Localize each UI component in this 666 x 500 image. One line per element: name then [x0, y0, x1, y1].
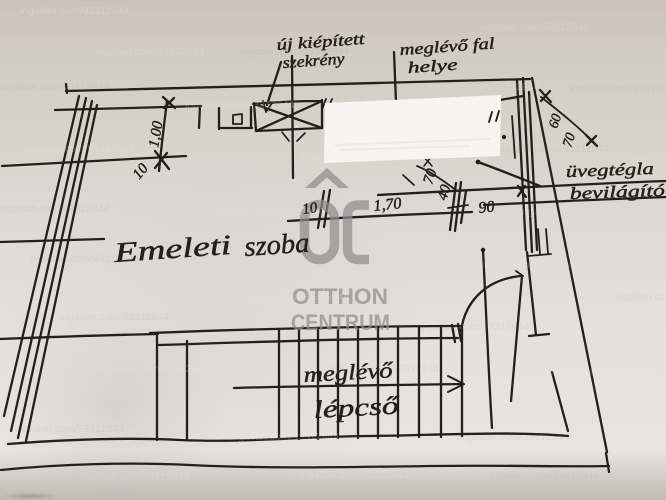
svg-text:40: 40: [435, 183, 455, 203]
svg-text:ingatlan.com/93312944: ingatlan.com/93312944: [480, 21, 589, 33]
svg-text:ingatlan.com/93312944: ingatlan.com/93312944: [240, 46, 349, 58]
svg-text:70: 70: [421, 167, 441, 187]
svg-text:helye: helye: [407, 57, 458, 77]
svg-text:ingatlan.com/93312944: ingatlan.com/93312944: [625, 151, 666, 163]
svg-text:ingatlan.com/93312944: ingatlan.com/93312944: [0, 203, 109, 215]
svg-text:ingatlan.com/93312944: ingatlan.com/93312944: [545, 366, 654, 378]
svg-text:90: 90: [478, 198, 496, 217]
svg-text:bevilágító: bevilágító: [569, 181, 665, 203]
svg-text:CENTRUM: CENTRUM: [291, 310, 390, 335]
svg-text:ingatlan.com/93312944: ingatlan.com/93312944: [300, 151, 409, 163]
svg-text:ingatlan.com/93312944: ingatlan.com/93312944: [520, 206, 629, 218]
svg-text:ingatlan.com/93312944: ingatlan.com/93312944: [470, 259, 579, 271]
svg-text:ingatlan.com/93312944: ingatlan.com/93312944: [100, 363, 209, 375]
svg-text:meglévő fal: meglévő fal: [399, 35, 496, 59]
svg-text:ingatlan.com/93312944: ingatlan.com/93312944: [570, 83, 666, 95]
svg-text:ingatlan.com/93312944: ingatlan.com/93312944: [60, 311, 169, 323]
svg-text:lépcső: lépcső: [313, 392, 401, 424]
svg-text:10: 10: [130, 160, 152, 182]
svg-text:ingatlan.com/93312944: ingatlan.com/93312944: [460, 431, 569, 443]
svg-text:ingatlan.com/93312944: ingatlan.com/93312944: [20, 5, 129, 17]
svg-text:ingatlan.com/93312944: ingatlan.com/93312944: [330, 363, 439, 375]
svg-text:ingatlan.com/93312944: ingatlan.com/93312944: [25, 143, 134, 155]
svg-text:ingatlan.com/93312944: ingatlan.com/93312944: [500, 143, 609, 155]
svg-text:ingatlan.com/93312944: ingatlan.com/93312944: [615, 291, 666, 303]
svg-text:ingatlan.com/93312944: ingatlan.com/93312944: [230, 431, 339, 443]
svg-text:ingatlan.com/93312944: ingatlan.com/93312944: [15, 423, 124, 435]
svg-text:ingatlan.com/93312944: ingatlan.com/93312944: [420, 321, 529, 333]
svg-text:ingatlan.com/93312944: ingatlan.com/93312944: [185, 99, 294, 111]
svg-text:1,70: 1,70: [373, 195, 403, 215]
svg-text:ingatlan.com/93312944: ingatlan.com/93312944: [80, 471, 189, 483]
svg-text:szoba: szoba: [243, 228, 310, 263]
svg-text:ingatlan.com/93312944: ingatlan.com/93312944: [240, 291, 349, 303]
svg-text:ingatlan.com/93312944: ingatlan.com/93312944: [30, 253, 139, 265]
svg-text:1,00: 1,00: [146, 120, 166, 149]
svg-text:ingatlan.com/93312944: ingatlan.com/93312944: [300, 469, 409, 481]
svg-text:ingatlan.com/93312944: ingatlan.com/93312944: [95, 46, 204, 58]
svg-text:ingatlan.com/93312944: ingatlan.com/93312944: [430, 81, 539, 93]
svg-text:ingatlan.com/93312944: ingatlan.com/93312944: [490, 469, 599, 481]
svg-text:ingatlan.com/93312944: ingatlan.com/93312944: [215, 206, 324, 218]
svg-text:ingatlan.com/93312944: ingatlan.com/93312944: [0, 81, 109, 93]
